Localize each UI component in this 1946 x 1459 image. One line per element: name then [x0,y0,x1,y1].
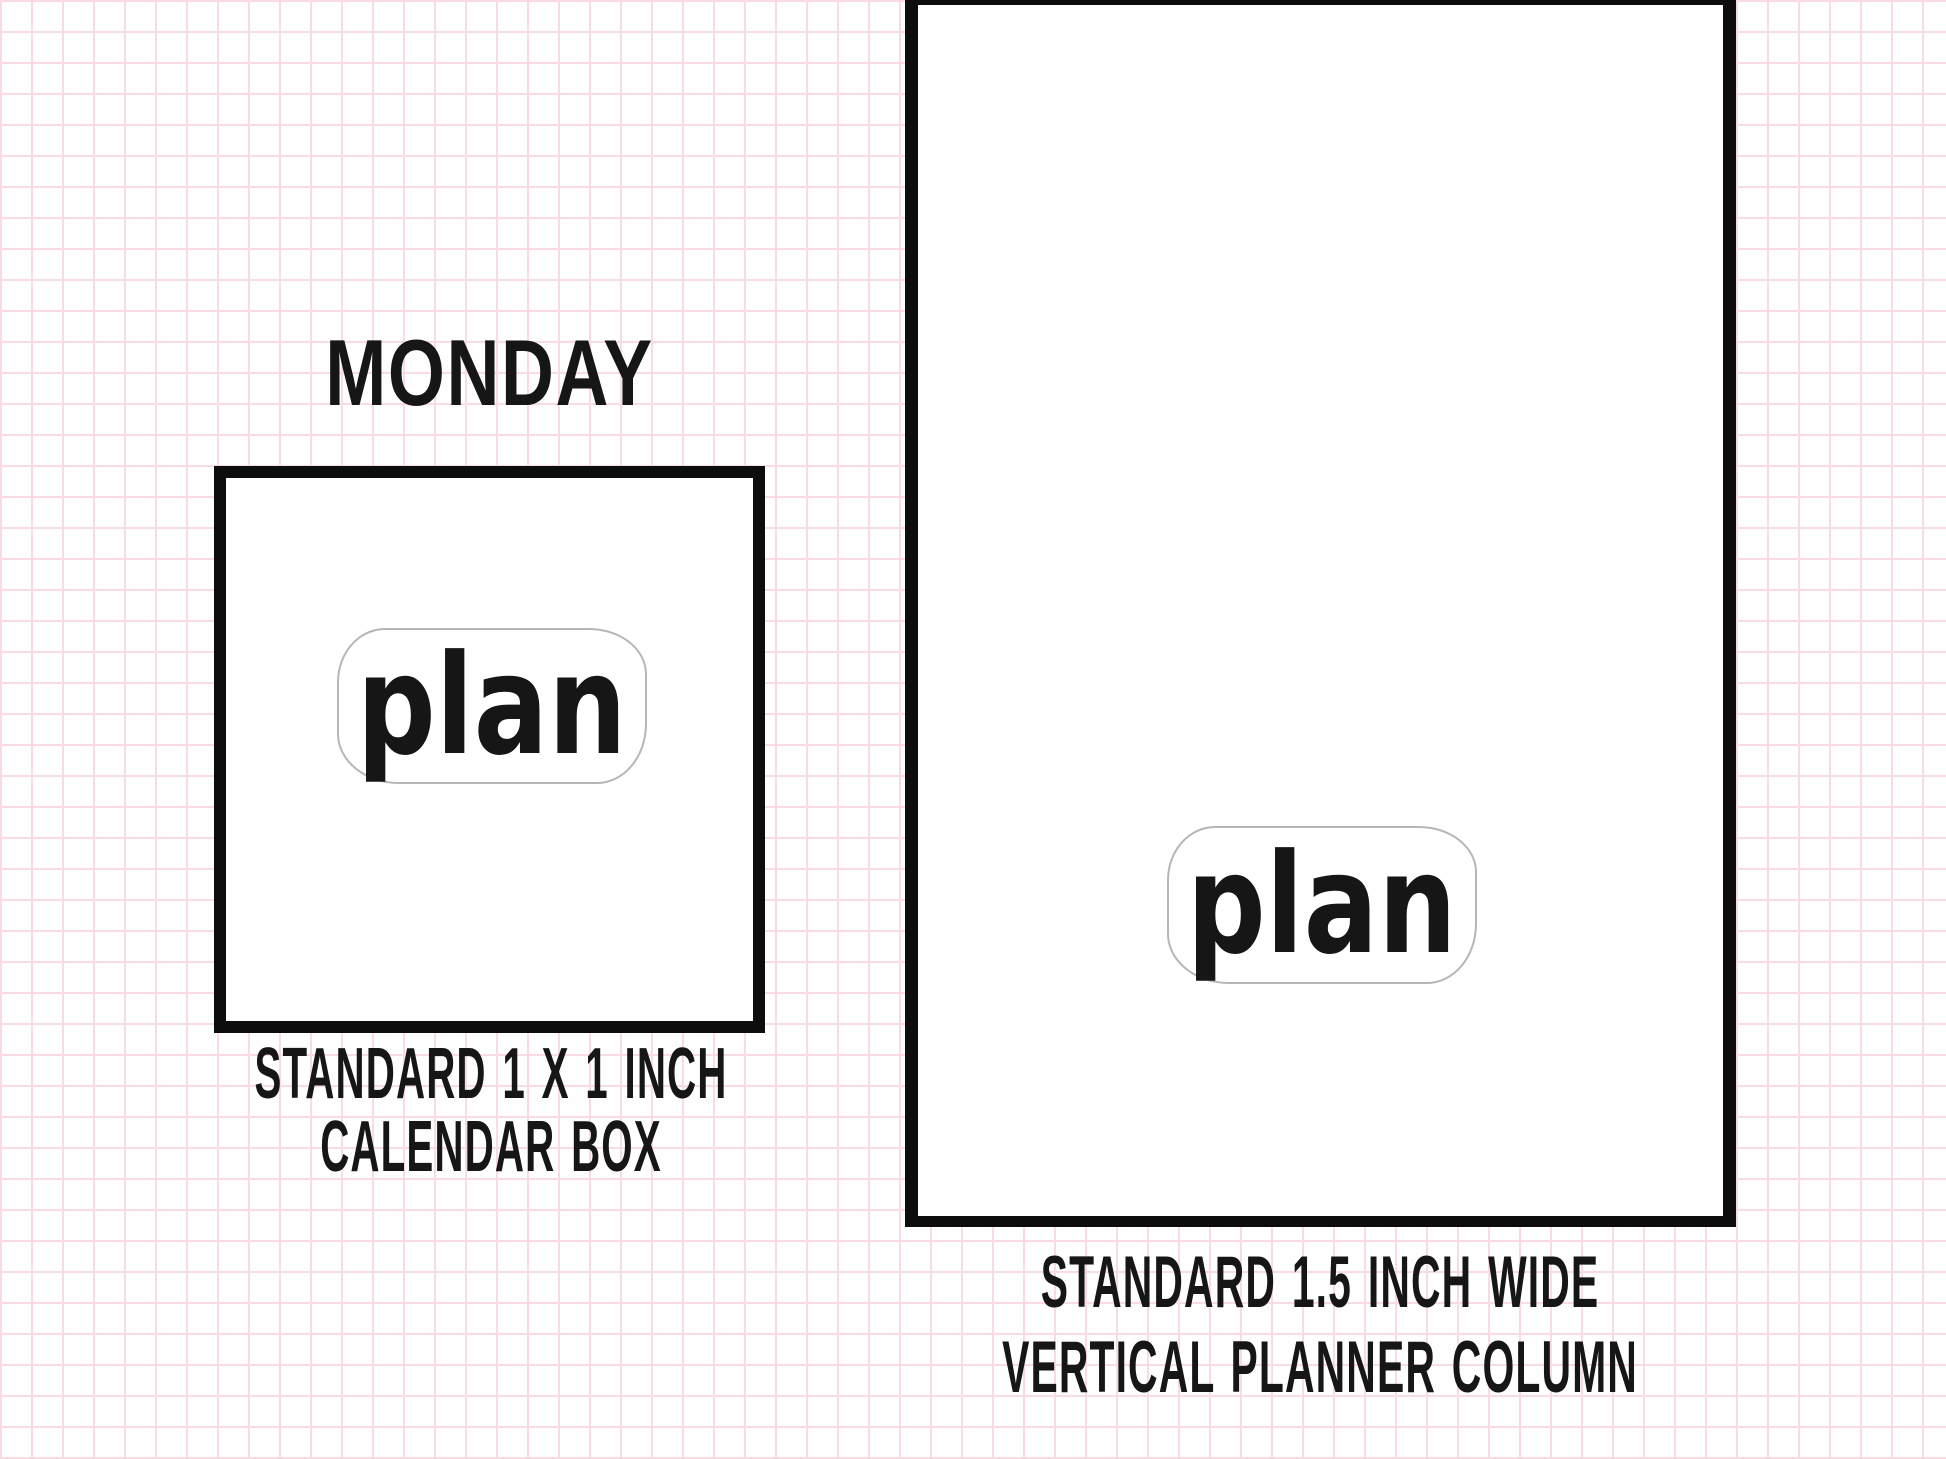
calendar-box-caption: STANDARD 1 X 1 INCH CALENDAR BOX [294,1038,688,1184]
caption-line: STANDARD 1 X 1 INCH [254,1038,727,1111]
sticker-size-guide-scene: MONDAY plan STANDARD 1 X 1 INCH CALENDAR… [0,0,1946,1459]
plan-sticker-calendar-box: plan [337,628,647,784]
plan-sticker-text: plan [357,637,627,775]
planner-column-caption: STANDARD 1.5 INCH WIDE VERTICAL PLANNER … [1096,1240,1544,1410]
planner-column-outline [905,0,1736,1227]
caption-line: VERTICAL PLANNER COLUMN [1002,1325,1638,1410]
plan-sticker-planner-column: plan [1167,826,1477,984]
caption-line: CALENDAR BOX [320,1111,662,1184]
caption-line: STANDARD 1.5 INCH WIDE [1041,1240,1600,1325]
day-header-label: MONDAY [275,318,705,428]
plan-sticker-text: plan [1187,836,1457,974]
